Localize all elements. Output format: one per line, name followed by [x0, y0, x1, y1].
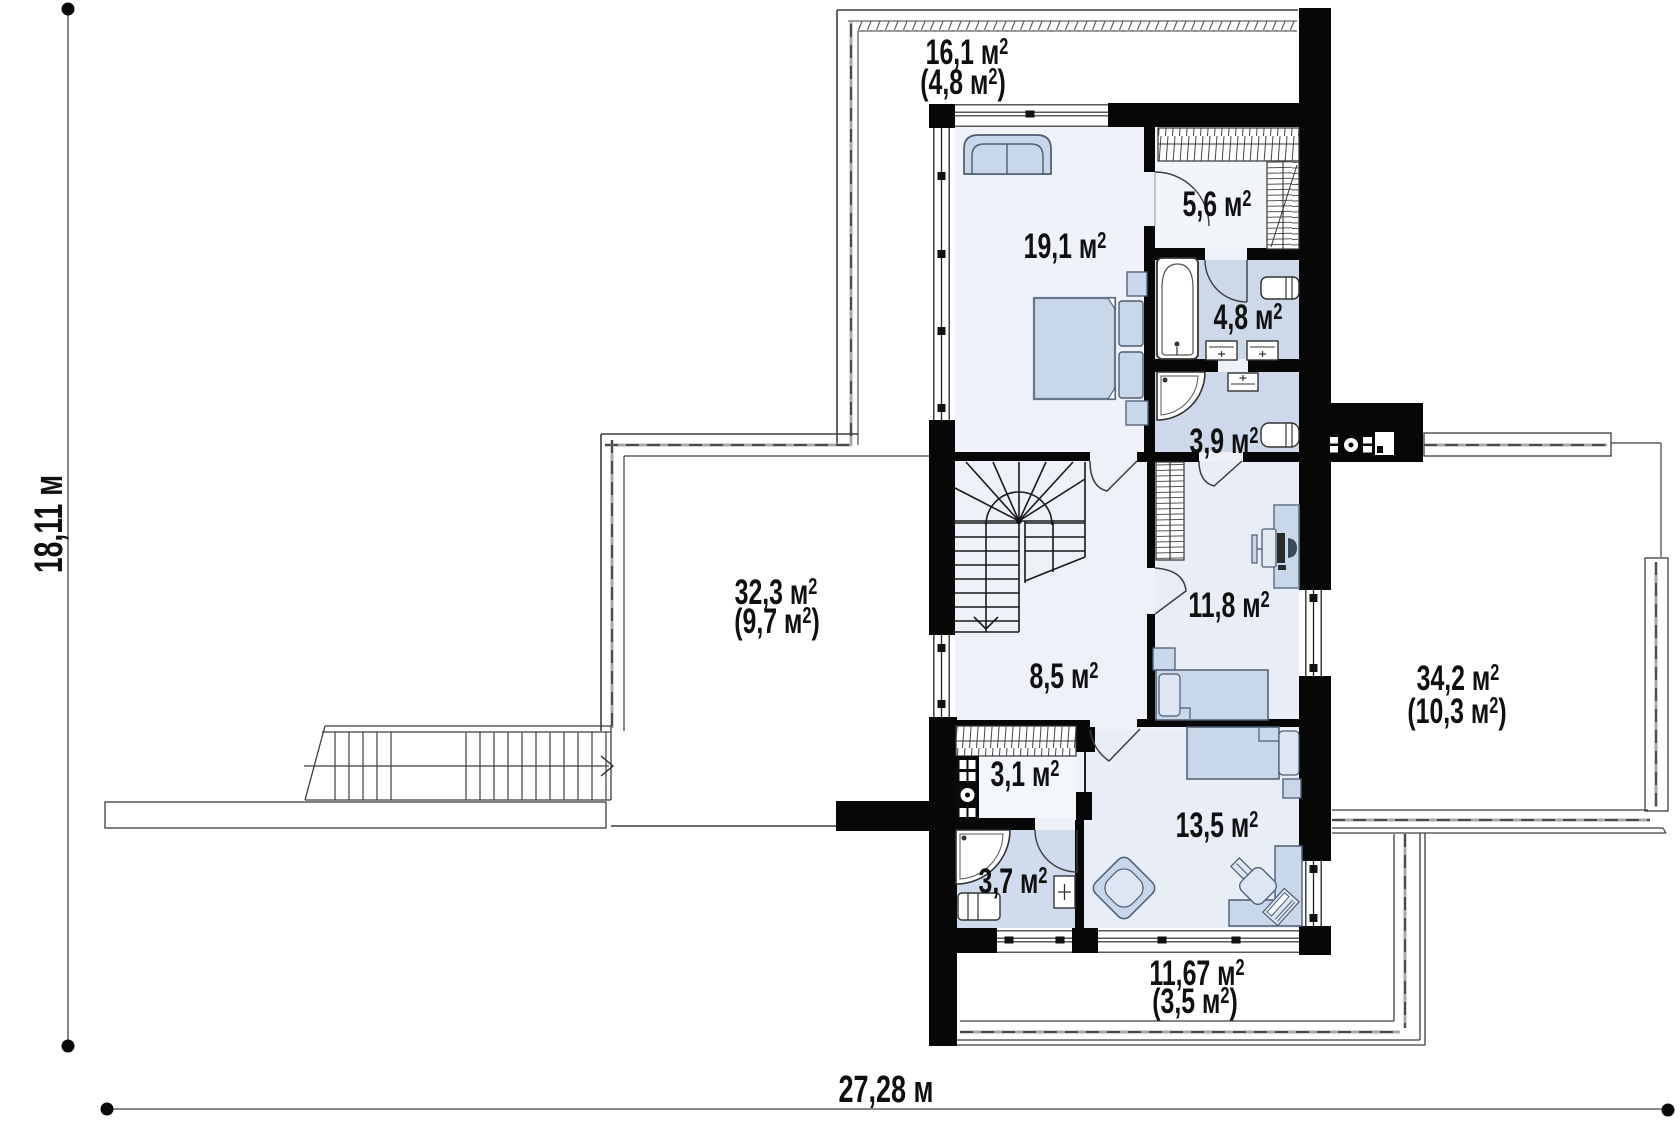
svg-text:8,5 м2: 8,5 м2: [1030, 658, 1099, 696]
svg-text:3,9 м2: 3,9 м2: [1190, 423, 1259, 461]
svg-text:18,11 м: 18,11 м: [27, 475, 71, 573]
svg-text:19,1 м2: 19,1 м2: [1024, 228, 1107, 266]
svg-text:5,6 м2: 5,6 м2: [1183, 186, 1252, 224]
svg-text:3,1 м2: 3,1 м2: [991, 756, 1060, 794]
svg-text:27,28 м: 27,28 м: [839, 1067, 934, 1110]
svg-text:11,8 м2: 11,8 м2: [1188, 587, 1269, 625]
svg-text:13,5 м2: 13,5 м2: [1176, 807, 1259, 845]
svg-text:3,7 м2: 3,7 м2: [979, 863, 1048, 901]
svg-text:4,8 м2: 4,8 м2: [1214, 299, 1283, 337]
